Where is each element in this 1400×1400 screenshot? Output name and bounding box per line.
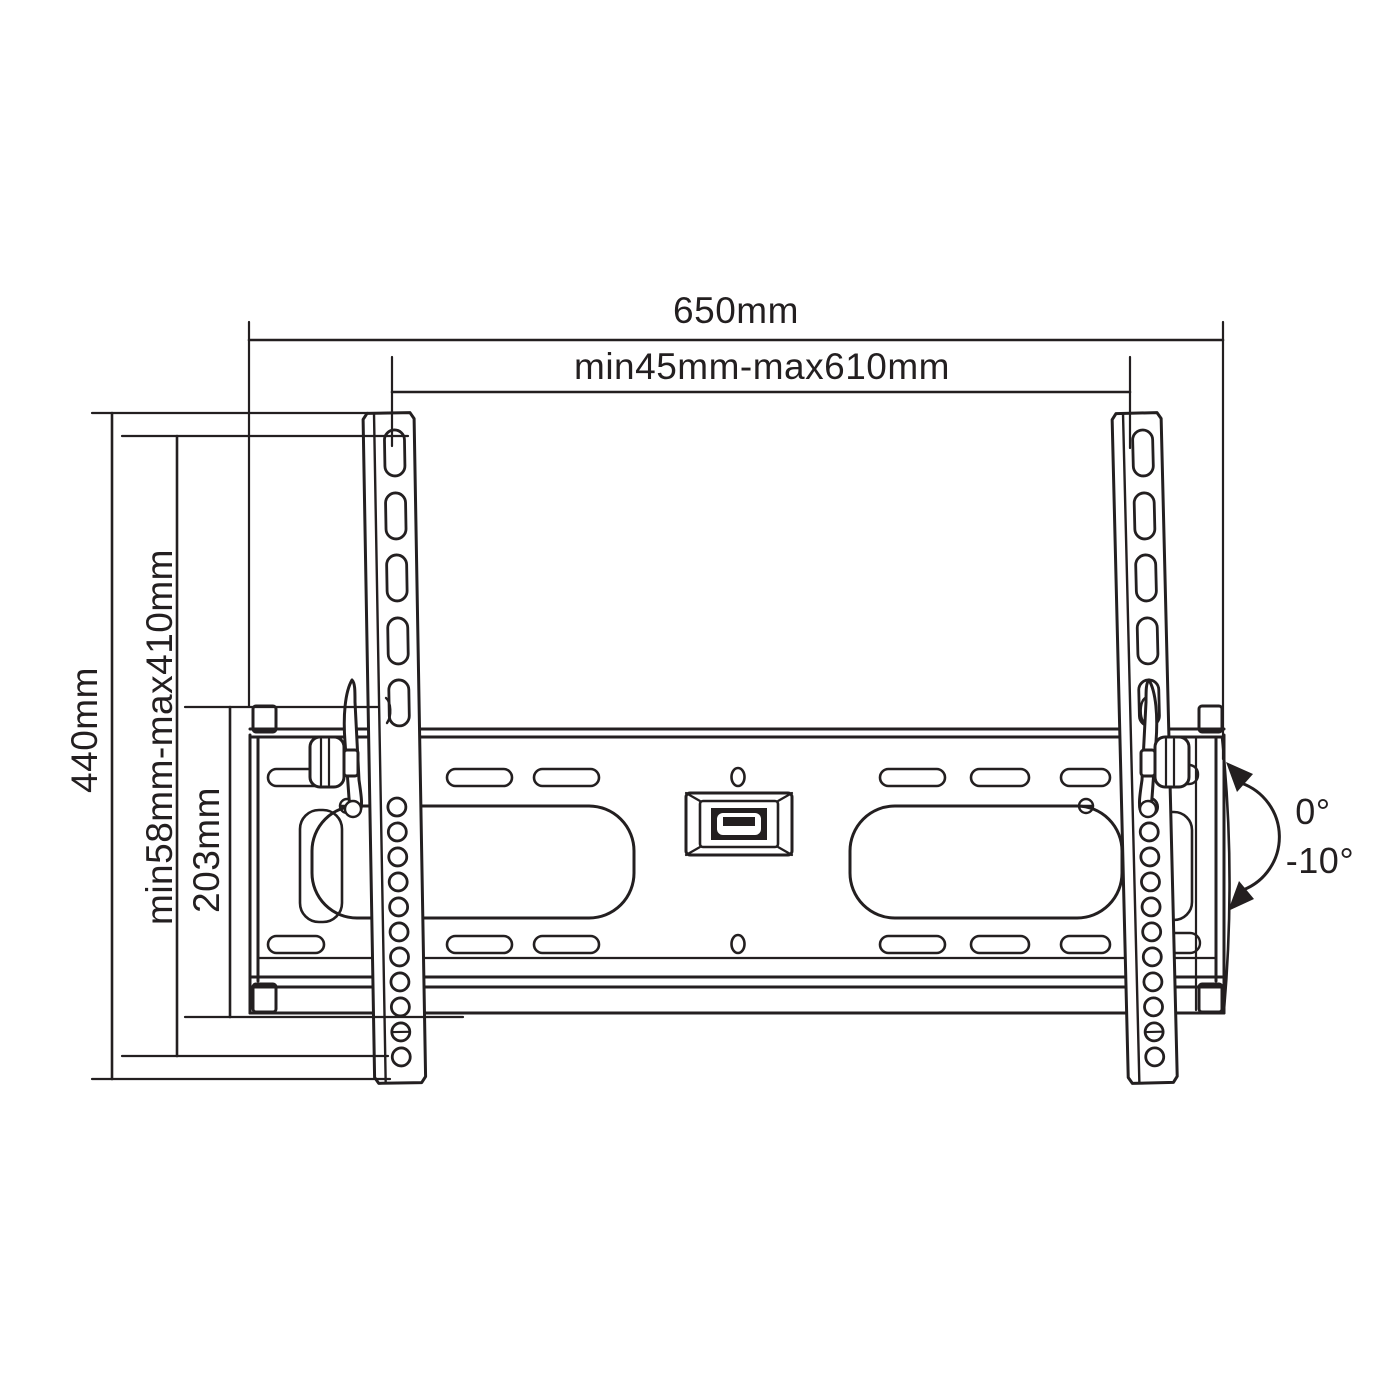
plate-hole-bottom-center [732,935,745,953]
bracket-line-art [0,0,1400,1400]
lock-latch-bar [723,817,755,826]
technical-drawing-page: 650mm min45mm-max610mm 440mm min58mm-max… [0,0,1400,1400]
tilt-arc-arrow [1226,762,1279,911]
dim-mount-width-range-label: min45mm-max610mm [574,346,950,388]
plate-cutout-right [850,806,1122,918]
right-knob-body [1155,737,1189,787]
plate-cutout-left [312,806,634,918]
dim-plate-height-label: 203mm [186,787,228,913]
lock-mechanism [686,793,792,855]
hinge-cutout-left [300,810,342,922]
left-rail-body [363,413,426,1084]
dim-overall-width-label: 650mm [673,290,799,332]
left-rail [363,413,426,1084]
dimension-lines [92,322,1223,1079]
plate-hole-top-center [732,768,745,786]
left-knob-body [310,737,344,787]
dim-overall-height-label: 440mm [64,667,106,793]
tilt-min-label: -10° [1286,840,1354,882]
dim-mount-height-range-label: min58mm-max410mm [139,549,181,925]
tilt-max-label: 0° [1295,791,1330,833]
left-latch-lever [344,680,361,813]
